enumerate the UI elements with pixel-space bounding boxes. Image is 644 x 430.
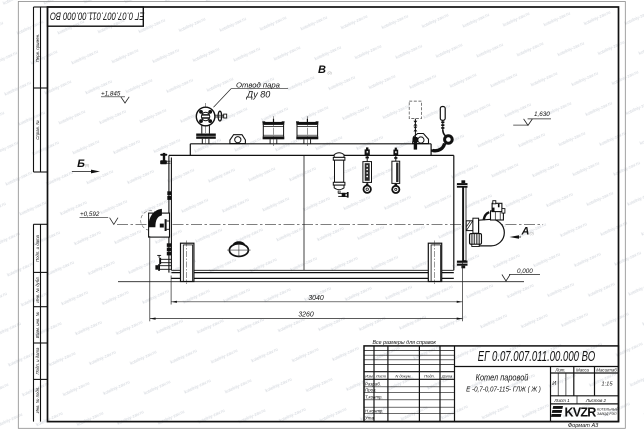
svg-text:И: И (552, 381, 556, 387)
svg-text:Формат А3: Формат А3 (568, 423, 599, 429)
svg-text:Изм: Изм (365, 374, 373, 379)
svg-text:Дата: Дата (441, 374, 453, 379)
svg-text:N докум.: N докум. (395, 374, 411, 379)
svg-text:ЗАВОД РЭП: ЗАВОД РЭП (597, 412, 617, 416)
svg-text:Масса: Масса (576, 368, 590, 373)
svg-text:Лит.: Лит. (554, 368, 565, 373)
svg-text:Котел паровой: Котел паровой (476, 372, 529, 383)
svg-text:Н.контр.: Н.контр. (365, 409, 384, 414)
svg-text:Пров.: Пров. (365, 387, 377, 392)
svg-text:Подп.: Подп. (424, 374, 435, 379)
svg-text:Б: Б (77, 158, 85, 170)
svg-text:Лист: Лист (375, 374, 387, 379)
svg-text:Инв. № дубл.: Инв. № дубл. (35, 276, 40, 302)
svg-text:Справ. №: Справ. № (35, 120, 40, 140)
svg-text:Перв. примен.: Перв. примен. (35, 34, 40, 63)
svg-text:(0): (0) (85, 164, 89, 168)
svg-text:(0): (0) (530, 232, 534, 236)
svg-text:А: А (521, 225, 530, 237)
svg-text:Утв.: Утв. (365, 416, 375, 421)
svg-text:Т.контр.: Т.контр. (365, 395, 383, 400)
svg-text:ЕГ 0.07.007.011.00.000 ВО: ЕГ 0.07.007.011.00.000 ВО (50, 9, 145, 22)
svg-text:Подп. и дата: Подп. и дата (35, 234, 40, 262)
svg-text:Разраб.: Разраб. (365, 382, 381, 387)
svg-text:1,630: 1,630 (534, 111, 550, 118)
svg-text:(0): (0) (328, 71, 332, 75)
svg-text:Подп. и дата: Подп. и дата (35, 347, 40, 375)
svg-text:КОТЕЛЬНЫЙ: КОТЕЛЬНЫЙ (597, 408, 619, 412)
svg-text:3040: 3040 (308, 295, 323, 302)
svg-text:KVZR: KVZR (565, 406, 597, 420)
svg-text:3260: 3260 (298, 312, 313, 319)
svg-text:Все размеры для справок: Все размеры для справок (373, 340, 437, 346)
svg-text:Е -0,7-0,07-115- ГЛЖ ( Ж ): Е -0,7-0,07-115- ГЛЖ ( Ж ) (466, 386, 541, 394)
svg-text:Инв. № подл.: Инв. № подл. (35, 387, 40, 414)
svg-text:Ду 80: Ду 80 (246, 89, 270, 99)
svg-text:+0,592: +0,592 (80, 211, 100, 218)
svg-text:Масштаб: Масштаб (596, 368, 617, 373)
svg-text:В: В (318, 64, 326, 76)
svg-text:Взам. инв. №: Взам. инв. № (35, 311, 40, 338)
svg-text:ЕГ 0.07.007.011.00.000 ВО: ЕГ 0.07.007.011.00.000 ВО (478, 348, 596, 365)
svg-text:Листов 2: Листов 2 (585, 398, 607, 403)
svg-text:Отвод пара: Отвод пара (236, 80, 281, 89)
svg-text:1:15: 1:15 (601, 382, 613, 388)
svg-text:Лист 1: Лист 1 (553, 398, 570, 403)
